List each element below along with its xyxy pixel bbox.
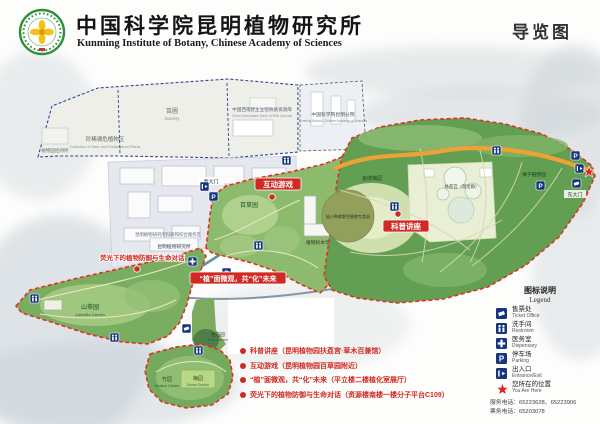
- area-label-nursery-cn: 苗圃: [166, 107, 178, 115]
- dispensary-icon: [188, 257, 197, 266]
- bullet-icon: [240, 377, 246, 383]
- ticket-office-icon: [496, 308, 507, 319]
- area-label-nursery-en: Nursery: [165, 116, 181, 121]
- svg-text:P: P: [211, 194, 216, 201]
- garden-label-bamboo-en: Bamboo Garden: [155, 384, 180, 388]
- note-item: “植”面微观，共“化”未来（平立楼二楼植化室展厅）: [240, 375, 449, 385]
- bullet-icon: [240, 363, 246, 369]
- campus-label: 昆明植物研究所科研和综合服务区: [135, 231, 201, 238]
- garden-label-greenhouse: 扶荔宫（温室群）: [444, 183, 479, 190]
- dispensary-icon: [496, 338, 507, 349]
- area-label-branch-en: Kunming Branch, Chinese Academy of Scien…: [299, 119, 368, 123]
- east-gate-label: 东大门: [567, 192, 582, 199]
- kib-building-label: 昆明植物研究所: [157, 243, 191, 250]
- svg-text:P: P: [499, 354, 505, 363]
- legend-item-ticket: 售票处Ticket Office: [496, 307, 596, 319]
- note-item: 科普讲座（昆明植物园扶荔宫·草木百兼馆）: [240, 346, 449, 356]
- garden-label-camellia-cn: 山茶园: [81, 303, 99, 311]
- bullet-icon: [240, 348, 246, 354]
- area-label-rare-cn: 珍稀濒危植物区: [86, 135, 125, 143]
- garden-label-smallpop: 极小种群野生植物专类园: [326, 213, 370, 219]
- legend-item-parking: P 停车场Parking: [496, 352, 596, 364]
- note-item: 互动游戏（昆明植物园百草园附近）: [240, 361, 449, 371]
- legend-phones: 服务电话：65223628、65223906 票务电话：65203078: [490, 399, 596, 416]
- svg-text:P: P: [573, 153, 578, 160]
- legend-item-you-are-here: 您所在的位置You Are Here: [496, 382, 596, 394]
- area-label-hostel: 植物园招待所: [41, 147, 69, 154]
- legend-panel: 图标说明 Legend 售票处Ticket Office 洗手间Restroom…: [484, 285, 596, 416]
- garden-label-gymnosperm: 裸子植物园: [522, 171, 546, 178]
- page-header: 中国科学院昆明植物研究所 Kunming Institute of Botany…: [0, 0, 600, 60]
- ticket-phone: 票务电话：65203078: [490, 408, 596, 417]
- legend-title-cn: 图标说明: [484, 285, 596, 296]
- kib-logo: [18, 8, 66, 56]
- legend-item-restroom: 洗手间Restroom: [496, 322, 596, 334]
- parking-icon: P: [496, 353, 507, 364]
- service-phone: 服务电话：65223628、65223906: [490, 399, 596, 408]
- legend-item-entrance: 出入口Entrance/Exit: [496, 367, 596, 379]
- legend-title-en: Legend: [484, 296, 596, 304]
- legend-item-dispensary: 医务室Dispensary: [496, 337, 596, 349]
- svg-text:“植”面微观，共“化”未来: “植”面微观，共“化”未来: [200, 274, 278, 283]
- svg-text:P: P: [538, 183, 543, 190]
- garden-label-rock-cn: 岩石园: [211, 331, 225, 338]
- area-label-rare-en: Collection of Rare and Endangered Plants: [70, 145, 141, 149]
- garden-label-bamboo-cn: 竹园: [162, 376, 172, 383]
- garden-label-herbarium: 植物标本馆: [306, 239, 330, 246]
- garden-label-camellia-en: Camellia Garden: [75, 312, 105, 317]
- garden-label-rock-en: Rock Garden: [208, 338, 228, 342]
- guide-map-page: 珍稀濒危植物区 Collection of Rare and Endangere…: [0, 0, 600, 424]
- restroom-icon: [496, 323, 507, 334]
- svg-text:荧光下的植物防御与生命对话: 荧光下的植物防御与生命对话: [100, 253, 185, 262]
- map-title: 导览图: [512, 18, 572, 43]
- event-notes: 科普讲座（昆明植物园扶荔宫·草木百兼馆） 互动游戏（昆明植物园百草园附近） “植…: [240, 346, 449, 404]
- area-label-germplasm-cn: 中国西南野生生物种质资源库: [232, 106, 292, 113]
- you-are-here-icon: [496, 383, 507, 394]
- garden-label-mume-en: Mume Garden: [187, 383, 209, 387]
- area-label-germplasm-en: China Germplasm Bank of Wild Species: [232, 114, 293, 118]
- garden-label-herb: 百草园: [240, 201, 258, 209]
- org-title-en: Kunming Institute of Botany, Chinese Aca…: [77, 38, 342, 49]
- note-item: 荧光下的植物防御与生命对话（资源楼南楼一楼分子平台C109）: [240, 390, 449, 400]
- garden-label-mume-cn: 梅园: [193, 375, 203, 382]
- bullet-icon: [240, 392, 246, 398]
- event-phyto: “植”面微观，共“化”未来: [190, 272, 286, 284]
- area-label-branch-cn: 中国科学院昆明分院: [311, 111, 354, 118]
- org-title-cn: 中国科学院昆明植物研究所: [76, 10, 364, 40]
- entrance-icon: [496, 368, 507, 379]
- svg-text:互动游戏: 互动游戏: [263, 179, 293, 189]
- svg-text:科普讲座: 科普讲座: [391, 221, 421, 231]
- garden-label-hamamelis: 金缕梅园: [362, 175, 382, 182]
